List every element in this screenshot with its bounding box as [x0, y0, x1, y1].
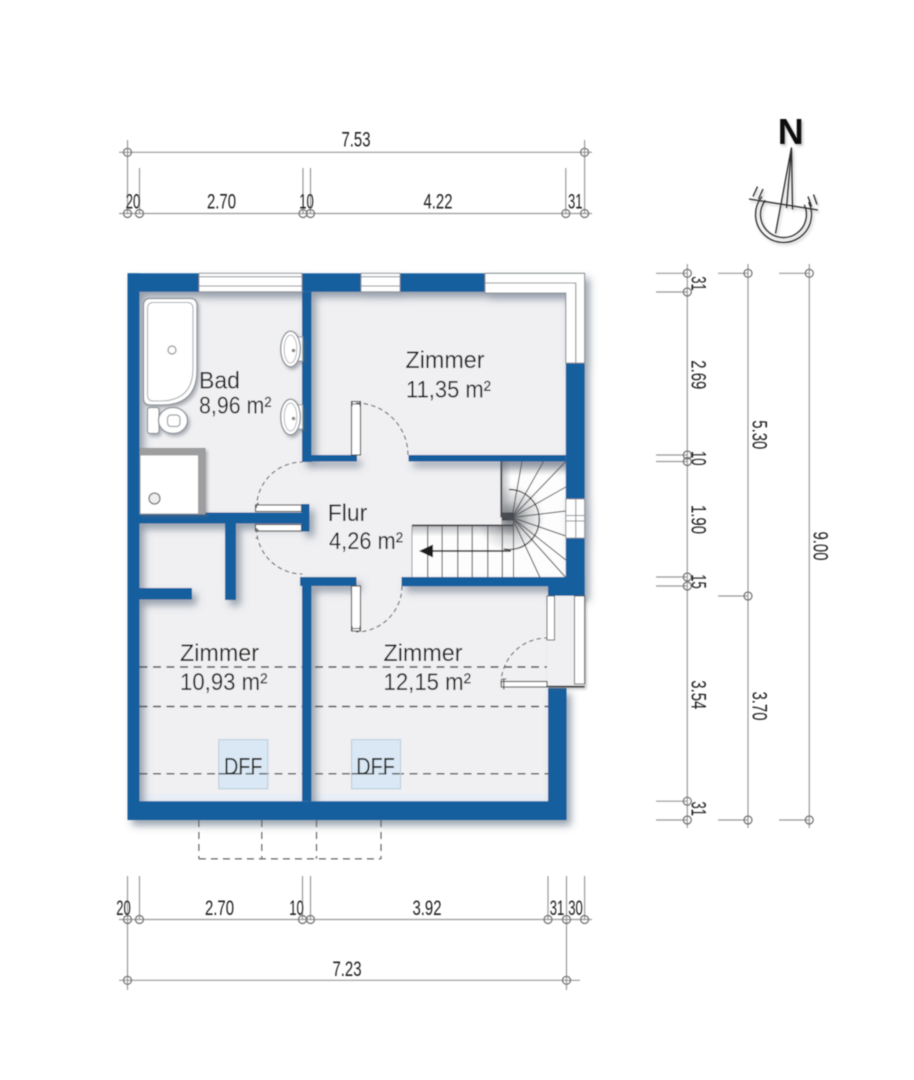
- svg-text:Zimmer: Zimmer: [406, 347, 485, 374]
- svg-text:30: 30: [568, 896, 583, 920]
- svg-text:2.70: 2.70: [205, 896, 234, 920]
- svg-text:4.22: 4.22: [424, 190, 453, 214]
- svg-text:2.70: 2.70: [207, 190, 236, 214]
- svg-text:20: 20: [126, 190, 141, 214]
- svg-text:2.69: 2.69: [687, 360, 711, 389]
- svg-text:10,93 m²: 10,93 m²: [180, 669, 268, 696]
- svg-text:4,26 m²: 4,26 m²: [329, 528, 403, 555]
- svg-text:15: 15: [687, 574, 711, 589]
- svg-text:11,35 m²: 11,35 m²: [406, 377, 491, 404]
- svg-text:Zimmer: Zimmer: [384, 640, 463, 667]
- svg-text:3.54: 3.54: [687, 680, 711, 709]
- svg-text:31: 31: [687, 276, 711, 291]
- svg-text:9.00: 9.00: [809, 532, 833, 561]
- svg-text:5.30: 5.30: [747, 420, 771, 449]
- svg-text:Flur: Flur: [328, 500, 368, 527]
- svg-text:31: 31: [687, 802, 711, 817]
- svg-text:20: 20: [116, 896, 131, 920]
- svg-text:3.70: 3.70: [747, 692, 771, 721]
- svg-text:Zimmer: Zimmer: [180, 640, 259, 667]
- svg-text:DFF: DFF: [224, 754, 263, 781]
- svg-text:31: 31: [568, 190, 583, 214]
- svg-text:N: N: [778, 111, 804, 152]
- svg-text:DFF: DFF: [356, 754, 395, 781]
- svg-text:3.92: 3.92: [413, 896, 442, 920]
- svg-text:7.23: 7.23: [333, 957, 362, 981]
- svg-text:10: 10: [299, 190, 314, 214]
- svg-text:31: 31: [550, 896, 565, 920]
- svg-text:8,96 m²: 8,96 m²: [199, 393, 272, 420]
- svg-text:1.90: 1.90: [687, 505, 711, 534]
- svg-text:10: 10: [289, 896, 304, 920]
- svg-text:Bad: Bad: [199, 368, 240, 395]
- svg-text:7.53: 7.53: [342, 128, 371, 152]
- svg-text:10: 10: [687, 451, 711, 466]
- svg-text:12,15 m²: 12,15 m²: [384, 669, 472, 696]
